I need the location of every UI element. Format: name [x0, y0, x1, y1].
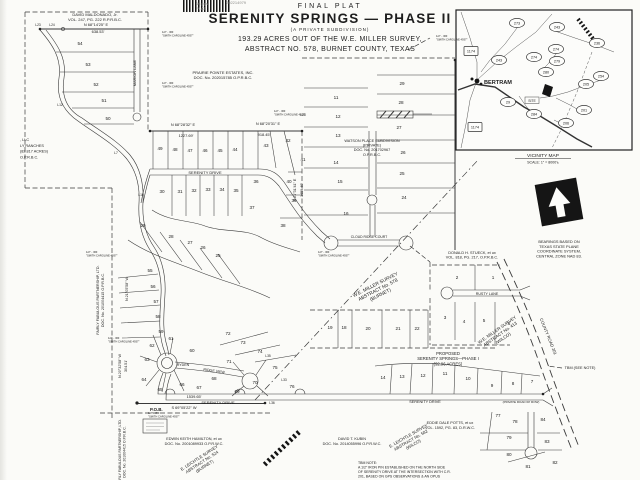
- monument-note: 1/2" - IRF"SMITH CAROLINE 4937": [162, 81, 194, 88]
- vicinity-scale: SCALE: 1" = 8000'±: [527, 161, 559, 165]
- lot-number: 33: [205, 187, 211, 192]
- lot-number: 27: [396, 125, 402, 130]
- lot-number: 66: [179, 382, 185, 387]
- road-label: COUNTY ROAD 201: [539, 317, 559, 356]
- lot-number: 13: [399, 374, 405, 379]
- road-label: (PRIVATE ROAD 60' ROW): [503, 400, 540, 404]
- vicinity-map: BERTRAM SITE 273243236117427427424327928…: [456, 10, 632, 165]
- bearing-label: N 21°05'58" W: [125, 276, 129, 301]
- lot-number: 25: [215, 253, 221, 258]
- survey-label: W.E. MILLER SURVEYABSTRACT No. 578(BURNE…: [352, 271, 405, 309]
- lot-number: 48: [172, 147, 178, 152]
- lot-number: 79: [506, 435, 512, 440]
- vicinity-caption: VICINITY MAP: [527, 153, 559, 159]
- bearing-label: S 21°31'41" E: [293, 178, 297, 201]
- distance-label: 304.51': [124, 360, 128, 372]
- route-label: 206: [563, 122, 569, 126]
- lot-number: 22: [414, 326, 420, 331]
- bearing-label: N 20°32'58" W: [118, 353, 122, 378]
- lot-number: 27: [187, 240, 193, 245]
- lot-number: 49: [157, 146, 163, 151]
- lot-number: 56: [150, 284, 156, 289]
- road-label: RYDEN: [177, 363, 190, 367]
- lot-number: 4: [463, 319, 466, 324]
- lot-number: 28: [398, 100, 404, 105]
- line-label: L33: [281, 378, 287, 382]
- route-label: 279: [554, 60, 560, 64]
- road-county-201: [497, 259, 579, 450]
- lot-number: 50: [105, 116, 111, 121]
- lot-number: 67: [196, 385, 202, 390]
- scanned-plat-page: 16 pgs PLAT 202214979 FINAL PLAT SERENIT…: [0, 0, 640, 480]
- distance-label: 918.45': [258, 132, 271, 137]
- lot-number: 28: [168, 234, 174, 239]
- route-label: 29: [506, 101, 510, 105]
- lot-number: 26: [200, 245, 206, 250]
- road-label: RUSTY LANE: [476, 292, 499, 296]
- owner-label: DONALD H. STUECK, et uxVOL. 818, PG. 217…: [446, 251, 498, 260]
- lot-number: 15: [337, 179, 343, 184]
- distance-label: 1459.40': [300, 183, 304, 197]
- lot-number: 81: [525, 464, 531, 469]
- lot-number: 69: [234, 389, 240, 394]
- lot-number: 38: [280, 223, 286, 228]
- lot-number: 77: [495, 413, 501, 418]
- lot-number: 53: [85, 62, 91, 67]
- route-label: 280: [543, 71, 549, 75]
- road-label: SERENITY DRIVE: [188, 170, 222, 175]
- monument-note: 1/2" - IRF"SMITH CAROLINE 4937": [108, 336, 140, 343]
- route-label: 236: [594, 42, 600, 46]
- lot-number: 9: [491, 383, 494, 388]
- line-label: L35: [265, 354, 271, 358]
- line-label: L10: [138, 193, 144, 197]
- lot-number: 52: [93, 82, 99, 87]
- bearing-label: N 68°28'32" E: [171, 122, 196, 127]
- lot-number: 64: [141, 377, 147, 382]
- lot-number: 34: [219, 187, 225, 192]
- lot-number: 61: [168, 336, 174, 341]
- lot-number: 60: [189, 348, 195, 353]
- lot-number: 1: [492, 275, 495, 280]
- lot-number: 59: [158, 329, 164, 334]
- lot-number: 68: [211, 376, 217, 381]
- line-label: L36: [269, 401, 275, 405]
- vicinity-town-label: BERTRAM: [484, 80, 512, 86]
- distance-label: 1227.69': [179, 133, 194, 138]
- monument-note: 1/2" - IRF"SMITH CAROLINE 4937": [148, 411, 180, 418]
- monument-note: 1/2" - IRF"SMITH CAROLINE 4937": [318, 250, 350, 257]
- boundary-solid: [40, 29, 455, 404]
- line-label: L12: [57, 103, 63, 107]
- lot-number: 47: [187, 148, 193, 153]
- lot-number: 13: [335, 133, 341, 138]
- lot-number: 44: [232, 147, 238, 152]
- route-label: 205: [583, 83, 589, 87]
- bearing-label: S 69°05'22" W: [171, 405, 196, 410]
- owner-label: DAVID T. KUBINDOC. No. 2014055996 O.P.R.…: [323, 437, 382, 446]
- lot-number: 80: [506, 452, 512, 457]
- poi-label: TBM (SEE NOTE): [565, 366, 597, 370]
- lot-number: 46: [202, 148, 208, 153]
- monument-note: 1/2" - IRF"SMITH CAROLINE 4937": [162, 30, 194, 37]
- lot-number: 36: [253, 179, 259, 184]
- bearing-label: N 68°14'25" E: [84, 22, 109, 27]
- lot-number: 18: [341, 325, 347, 330]
- tbm-note: TBM NOTE:A 1/2" IRON PIN ESTABLISHED ON …: [358, 461, 451, 479]
- north-arrow: [535, 178, 584, 227]
- lot-number: 7: [531, 379, 534, 384]
- lot-number: 30: [159, 189, 165, 194]
- lot-number: 65: [157, 387, 163, 392]
- lot-number: 29: [399, 81, 405, 86]
- note-box: [143, 419, 167, 433]
- lot-number: 84: [540, 417, 546, 422]
- route-label: 284: [531, 113, 537, 117]
- lot-number: 24: [401, 195, 407, 200]
- lot-number: 74: [257, 349, 263, 354]
- monument-note: 1/2" - IRF"SMITH CAROLINE 4937": [274, 109, 306, 116]
- north-note: BEARINGS BASED ONTEXAS STATE PLANECOORDI…: [536, 239, 582, 258]
- line-label: L24: [49, 23, 55, 27]
- route-label: 274: [531, 56, 537, 60]
- monument-note: 1/2" - IRF"SMITH CAROLINE 4937": [86, 250, 118, 257]
- route-label: 273: [514, 22, 520, 26]
- lot-number: 43: [263, 143, 269, 148]
- route-label: 201: [581, 109, 587, 113]
- lot-number: 76: [289, 384, 295, 389]
- distance-label: 638.53': [92, 29, 105, 34]
- lot-number: 31: [177, 189, 183, 194]
- road-label: RIDGE VIEW: [203, 368, 226, 375]
- lot-number: 51: [101, 98, 107, 103]
- lot-number: 70: [252, 380, 258, 385]
- lot-number: 71: [226, 359, 232, 364]
- lot-number: 40: [286, 179, 292, 184]
- line-label: L23: [35, 23, 41, 27]
- owner-label: FAIRLY FABULOUS PARTNERSHIP, LTD.DOC. No…: [96, 265, 105, 334]
- lot-number: 11: [334, 95, 339, 100]
- lot-number: 14: [333, 160, 339, 165]
- road-label: SERENITY DRIVE: [201, 400, 235, 405]
- lot-number: 73: [240, 340, 246, 345]
- route-label: 243: [554, 26, 560, 30]
- lot-number: 16: [343, 211, 349, 216]
- lot-number: 14: [380, 375, 386, 380]
- owner-label: EDDIE DALE POTTS, et uxVOL. 1592, PG. 83…: [425, 421, 475, 430]
- lot-number: 35: [233, 188, 239, 193]
- lot-number: 5: [483, 318, 486, 323]
- route-label: 1174: [467, 50, 475, 54]
- hatched-road-stub: [263, 432, 299, 466]
- site-label: SITE: [528, 99, 536, 103]
- lot-number: 58: [155, 314, 161, 319]
- bearing-label: N 68°20'31" E: [256, 121, 281, 126]
- lot-number: 45: [217, 148, 223, 153]
- lot-number: 12: [335, 114, 341, 119]
- route-label: 1174: [471, 126, 479, 130]
- survey-label: E. LEICHTLE SURVEYABSTRACT No. 524(BURNE…: [180, 444, 225, 480]
- line-label: L7: [114, 151, 118, 155]
- lot-number: 2: [456, 275, 459, 280]
- road-label: CLOUD RIDGE COURT: [351, 235, 387, 239]
- survey-label: E. LEICHTLE SURVEYABSTRACT No. 582(WILCO…: [388, 423, 433, 458]
- lot-number: 3: [444, 315, 447, 320]
- lot-number: 72: [225, 331, 231, 336]
- lot-number: 63: [144, 357, 150, 362]
- lot-number: 29: [140, 223, 146, 228]
- route-label: 274: [553, 48, 559, 52]
- lot-number: 62: [149, 343, 155, 348]
- road-label: MARION LANE: [133, 59, 137, 86]
- lot-number: 8: [512, 381, 515, 386]
- phase1-label: PROPOSEDSERENITY SPRINGS—PHASE I(92.96 A…: [417, 351, 479, 366]
- distance-label: 1539.65': [187, 394, 202, 399]
- owner-label: PRAIRIE POINTE ESTATES, INC.DOC. No. 202…: [193, 70, 254, 80]
- lot-number: 54: [77, 41, 83, 46]
- owner-label: DAVID MALDONADO, Jr.VOL. 247, PG. 222 R.…: [68, 12, 122, 22]
- lot-number: 26: [400, 150, 406, 155]
- lot-number: 19: [327, 325, 333, 330]
- road-bottom-right-stub: [525, 412, 537, 459]
- lot-number: 25: [399, 171, 405, 176]
- lot-number: 57: [153, 299, 159, 304]
- lot-number: 10: [465, 376, 471, 381]
- lot-number: 42: [285, 138, 291, 143]
- route-label: 254: [598, 75, 604, 79]
- owner-label: , LLCLY RANCHES(82.817 ACRES)O.P.R.B.C.: [20, 138, 49, 159]
- plat-drawing: BERTRAM SITE 273243236117427427424327928…: [0, 0, 640, 480]
- lot-number: 12: [420, 373, 426, 378]
- owner-label: FAIRLY FABULOUS PARTNERSHIP, LTD.DOC. No…: [118, 419, 127, 480]
- route-label: 243: [496, 59, 502, 63]
- lot-number: 21: [395, 326, 401, 331]
- owner-label: WATSON PLACE SUBDIVISION(PRIVATE)DOC. No…: [344, 139, 400, 157]
- lot-number: 20: [365, 326, 371, 331]
- lot-number: 11: [443, 371, 448, 376]
- lot-number: 75: [272, 365, 278, 370]
- lot-number: 83: [544, 439, 550, 444]
- lot-number: 55: [147, 268, 153, 273]
- lot-number: 78: [512, 419, 518, 424]
- lot-number: 32: [191, 188, 197, 193]
- lot-number: 82: [552, 460, 558, 465]
- lot-number: 37: [249, 205, 255, 210]
- lot-number: 41: [300, 157, 306, 162]
- road-label: SERENITY DRIVE: [409, 400, 441, 404]
